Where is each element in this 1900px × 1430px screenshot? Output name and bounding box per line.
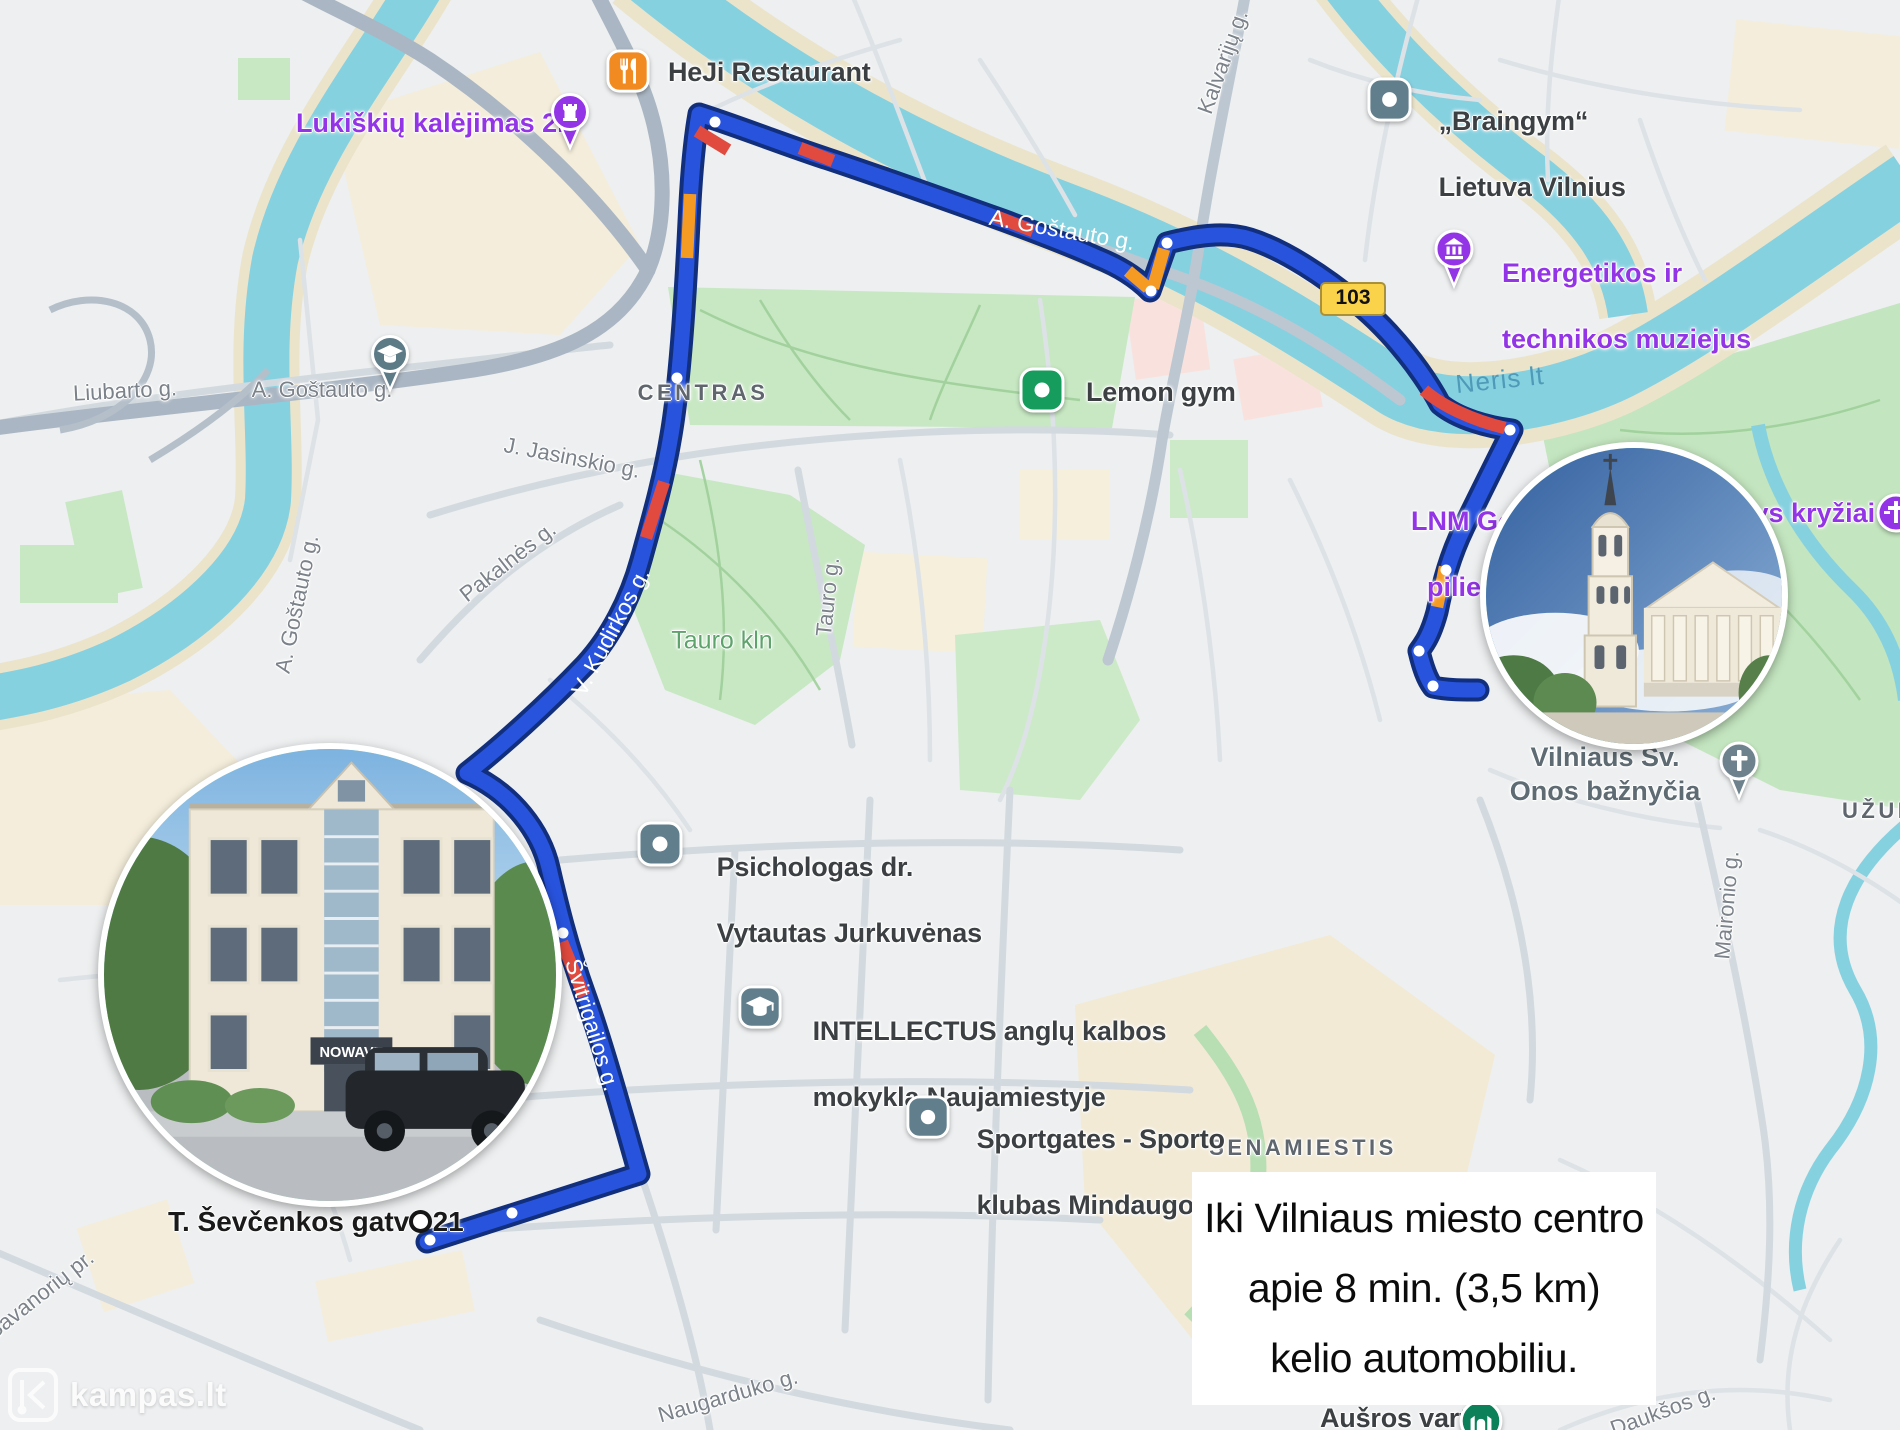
info-line-1: Iki Vilniaus miesto centro: [1204, 1195, 1644, 1242]
map-canvas[interactable]: Liubarto g. A. Goštauto g. A. Goštauto g…: [0, 0, 1900, 1430]
castle-pin-icon[interactable]: [548, 92, 592, 157]
poi-energetikos-line1: Energetikos ir: [1502, 258, 1682, 288]
crosses-pin-icon[interactable]: [1874, 492, 1900, 541]
poi-onos-line2: Onos bažnyčia: [1510, 776, 1701, 806]
poi-label-onos-baznycia[interactable]: Vilniaus Sv. Onos bažnyčia: [1500, 740, 1710, 808]
intellectus-icon[interactable]: [737, 984, 783, 1035]
watermark-text: kampas.lt: [70, 1376, 227, 1414]
street-label-liubarto: Liubarto g.: [72, 375, 177, 406]
poi-sportgates-line1: Sportgates - Sporto: [977, 1124, 1225, 1154]
poi-braingym-line1: „Braingym“: [1439, 106, 1589, 136]
poi-label-lukiskiu-kalejimas[interactable]: Lukiškių kalėjimas 2.0: [296, 107, 580, 140]
poi-psichologas-line2: Vytautas Jurkuvėnas: [717, 918, 982, 948]
info-line-3: kelio automobiliu.: [1270, 1335, 1578, 1382]
poi-label-psichologas[interactable]: Psichologas dr. Vytautas Jurkuvėnas: [702, 818, 982, 950]
sportgates-icon[interactable]: [905, 1094, 951, 1145]
poi-sportgates-line2: klubas Mindaugo: [977, 1190, 1195, 1220]
poi-label-heji-restaurant[interactable]: HeJi Restaurant: [668, 56, 871, 89]
watermark: kampas.lt: [6, 1366, 227, 1424]
building-photo: NOWAVE: [98, 743, 562, 1207]
area-label-senamiestis: SENAMIESTIS: [1209, 1135, 1397, 1161]
poi-label-lemon-gym[interactable]: Lemon gym: [1086, 376, 1236, 409]
school-pin-icon[interactable]: [368, 334, 412, 399]
area-label-uzupis: UŽUPIS: [1842, 798, 1900, 824]
poi-label-sportgates[interactable]: Sportgates - Sporto klubas Mindaugo: [962, 1090, 1225, 1222]
poi-label-energetikos[interactable]: Energetikos ir technikos muziejus: [1487, 224, 1751, 356]
poi-braingym-line2: Lietuva Vilnius: [1439, 172, 1626, 202]
church-pin-icon[interactable]: [1716, 740, 1762, 807]
psichologas-icon[interactable]: [636, 820, 684, 873]
cathedral-photo: [1480, 442, 1788, 750]
area-label-centras: CENTRAS: [638, 380, 769, 406]
poi-intellectus-line1: INTELLECTUS anglų kalbos: [813, 1016, 1167, 1046]
route-info-box: Iki Vilniaus miesto centro apie 8 min. (…: [1192, 1172, 1656, 1405]
poi-psichologas-line1: Psichologas dr.: [717, 852, 914, 882]
restaurant-icon[interactable]: [605, 48, 651, 99]
kampas-logo-icon: [6, 1366, 60, 1424]
park-label-tauro-kln: Tauro kln: [671, 627, 772, 656]
route-start-marker[interactable]: [409, 1210, 432, 1233]
poi-label-braingym[interactable]: „Braingym“ Lietuva Vilnius: [1424, 72, 1626, 204]
road-badge-103: 103: [1320, 282, 1386, 316]
poi-energetikos-line2: technikos muziejus: [1502, 324, 1751, 354]
braingym-icon[interactable]: [1366, 76, 1413, 128]
info-line-2: apie 8 min. (3,5 km): [1248, 1265, 1600, 1312]
lemon-gym-icon[interactable]: [1018, 366, 1066, 419]
museum-pin-icon[interactable]: [1432, 228, 1476, 295]
